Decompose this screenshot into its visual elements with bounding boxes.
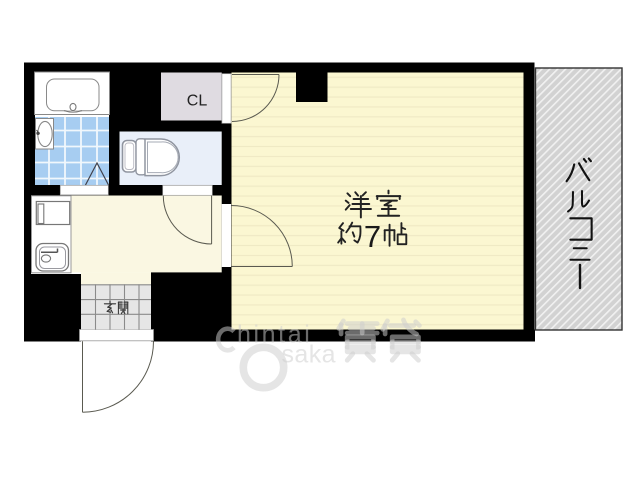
svg-text:saka: saka [282,341,336,369]
svg-text:7: 7 [364,219,381,254]
svg-text:CL: CL [187,93,208,110]
